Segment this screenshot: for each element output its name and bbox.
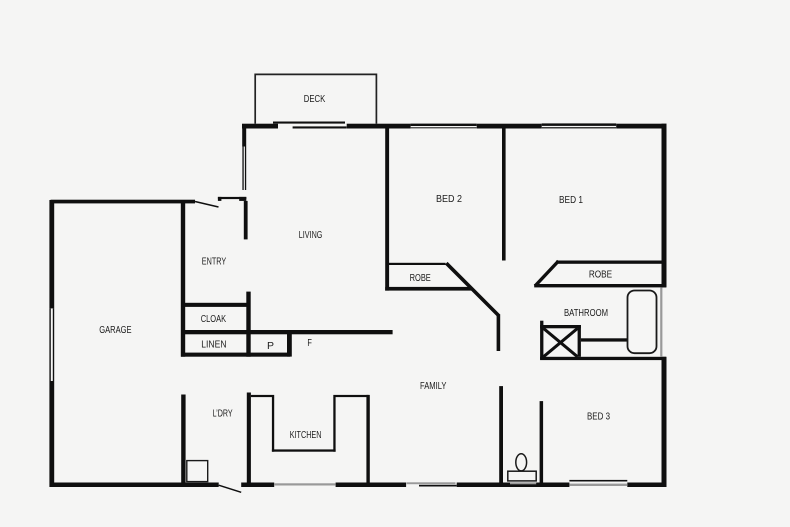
svg-text:F: F (307, 338, 312, 349)
svg-text:BED 2: BED 2 (436, 194, 462, 205)
svg-text:KITCHEN: KITCHEN (290, 430, 322, 441)
svg-text:BED 3: BED 3 (587, 412, 610, 423)
svg-text:LIVING: LIVING (299, 230, 323, 241)
svg-text:CLOAK: CLOAK (201, 314, 227, 325)
svg-text:L’DRY: L’DRY (213, 408, 233, 419)
svg-text:P: P (267, 341, 274, 352)
svg-text:FAMILY: FAMILY (420, 381, 447, 392)
svg-text:ROBE: ROBE (589, 269, 613, 280)
svg-text:BATHROOM: BATHROOM (564, 308, 608, 319)
svg-text:LINEN: LINEN (201, 339, 226, 350)
svg-text:ENTRY: ENTRY (202, 257, 227, 268)
svg-text:GARAGE: GARAGE (99, 325, 132, 336)
svg-text:BED 1: BED 1 (559, 195, 583, 206)
svg-text:ROBE: ROBE (410, 273, 431, 284)
svg-text:DECK: DECK (304, 94, 326, 105)
